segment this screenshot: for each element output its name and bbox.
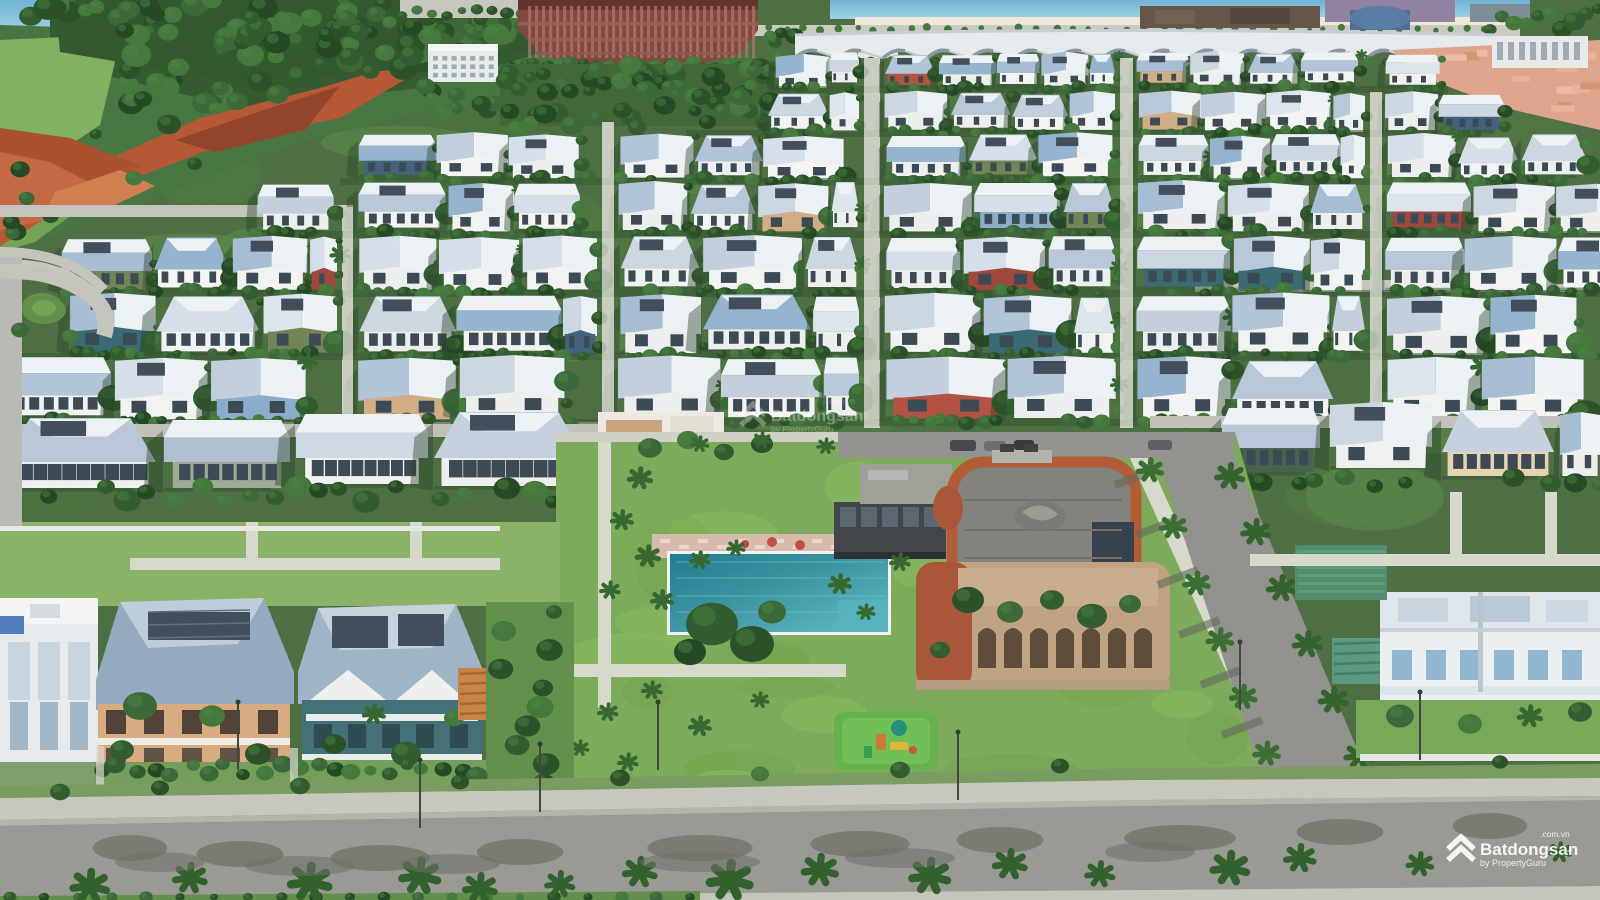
svg-text:Batdongsan: Batdongsan (1480, 840, 1578, 859)
svg-text:.com.vn: .com.vn (827, 397, 855, 406)
svg-text:by PropertyGuru: by PropertyGuru (1480, 858, 1546, 868)
svg-text:.com.vn: .com.vn (1540, 829, 1570, 839)
svg-text:by PropertyGuru: by PropertyGuru (771, 424, 834, 434)
svg-text:Batdongsan: Batdongsan (771, 408, 863, 425)
